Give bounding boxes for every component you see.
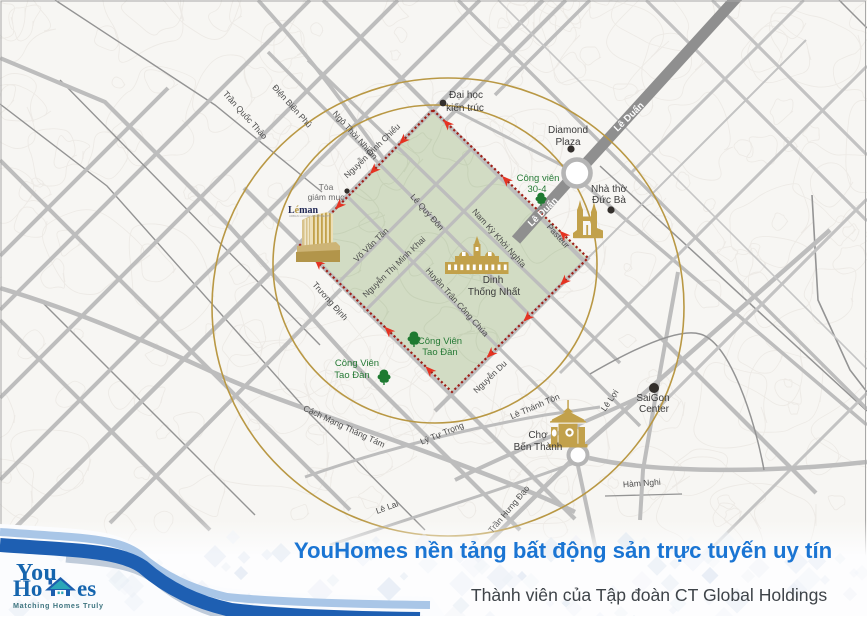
svg-text:Công Viên: Công Viên: [418, 336, 462, 347]
svg-text:Matching Homes Truly: Matching Homes Truly: [13, 601, 104, 610]
svg-text:Đại học: Đại học: [449, 90, 483, 101]
svg-text:Tao Đàn: Tao Đàn: [422, 347, 457, 358]
svg-text:Tao Đàn: Tao Đàn: [334, 370, 369, 381]
svg-text:Công Viên: Công Viên: [335, 358, 379, 369]
svg-text:YouHomes nền tảng bất động sản: YouHomes nền tảng bất động sản trực tuyế…: [294, 538, 832, 563]
svg-text:30-4: 30-4: [527, 184, 546, 195]
svg-text:Center: Center: [639, 404, 670, 415]
svg-text:Chợ: Chợ: [528, 430, 548, 441]
svg-text:Ho: Ho: [13, 576, 42, 601]
svg-text:URBAN LUXURY APARTMENTS: URBAN LUXURY APARTMENTS: [289, 214, 330, 218]
svg-text:Bến Thành: Bến Thành: [514, 441, 563, 453]
svg-text:es: es: [77, 576, 96, 601]
svg-text:SaiGon: SaiGon: [636, 393, 669, 404]
svg-text:Diamond: Diamond: [548, 125, 588, 136]
svg-text:Công viên: Công viên: [517, 173, 560, 184]
svg-text:giám mục: giám mục: [308, 192, 346, 202]
svg-text:Dinh: Dinh: [483, 275, 504, 286]
svg-text:Tòa: Tòa: [319, 182, 334, 192]
svg-text:Đức Bà: Đức Bà: [592, 195, 626, 206]
svg-text:kiến trúc: kiến trúc: [446, 102, 484, 114]
svg-text:Thống Nhất: Thống Nhất: [468, 286, 520, 298]
svg-text:Thành viên của Tập đoàn CT Glo: Thành viên của Tập đoàn CT Global Holdin…: [471, 585, 828, 605]
svg-text:Nhà thờ: Nhà thờ: [591, 184, 627, 195]
svg-text:Plaza: Plaza: [555, 137, 580, 148]
